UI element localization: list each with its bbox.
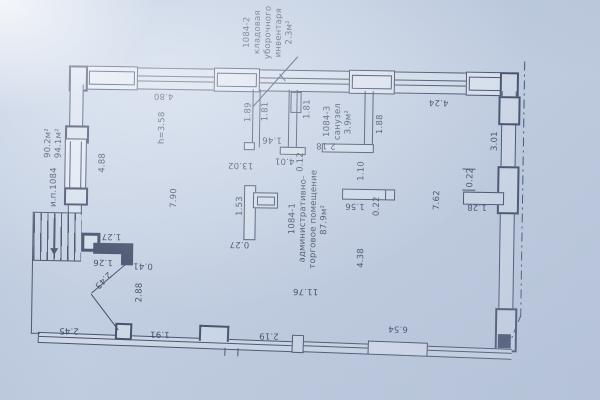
dim-label: 6.54 [388,323,408,333]
dim-label: 2.43 [92,269,113,290]
room-label-storage: 1084-2 кладовая уборочного инвентаря 2.3… [242,5,296,59]
dim-label: 4.01 [275,156,295,166]
dim-label: 2.45 [59,325,79,335]
dim-label: 11.76 [293,286,318,296]
dim-label: 1.53 [235,196,245,216]
dim-label: 1.28 [467,202,487,212]
room-label-sanuzel: 1084-3 санузел 3.9м² [322,103,354,141]
dim-label: 4.88 [97,153,107,173]
floor-plan-photo: 4.804.241.891.811.811.883.01h=3.584.881.… [0,0,600,400]
dim-label: 1.89 [243,102,253,122]
labels-layer: 4.804.241.891.811.811.883.01h=3.584.881.… [0,0,600,400]
dim-label: 4.80 [154,91,174,101]
dim-label: 1.91 [150,329,170,339]
dim-label: 1.46 [262,134,282,144]
dim-label: 0.22 [372,196,382,216]
dim-label: 1.56 [345,201,365,211]
floor-plan: 4.804.241.891.811.811.883.01h=3.584.881.… [0,0,600,400]
dim-label: 4.24 [429,97,449,107]
dim-label: 7.62 [432,190,442,210]
dim-label: 1.27 [101,231,121,241]
dim-label: 1.81 [260,102,270,122]
dim-label: 2.88 [134,283,144,303]
dim-label: 0.41 [133,260,153,270]
dim-label: 3.01 [490,131,500,151]
dim-label: 1.88 [375,114,385,134]
dim-label: 4.38 [356,248,366,268]
dim-label: 13.02 [228,160,253,170]
dim-label: 1.10 [356,161,366,181]
dim-label: 0.27 [229,239,249,249]
area-label: 90.2м² 94.1м² [43,128,65,158]
dim-label: 2.18 [316,140,336,150]
unit-label: и.п.1084 [49,167,60,207]
dim-label: 0.22 [465,168,475,188]
dim-label: 1.26 [93,257,113,267]
dim-label: 7.90 [169,188,179,208]
dim-label: 1.81 [302,99,312,119]
dim-label: 2.19 [259,330,279,340]
dim-label: h=3.58 [157,111,168,144]
room-label-main: 1084-1 административно- торговое помещен… [287,169,331,269]
